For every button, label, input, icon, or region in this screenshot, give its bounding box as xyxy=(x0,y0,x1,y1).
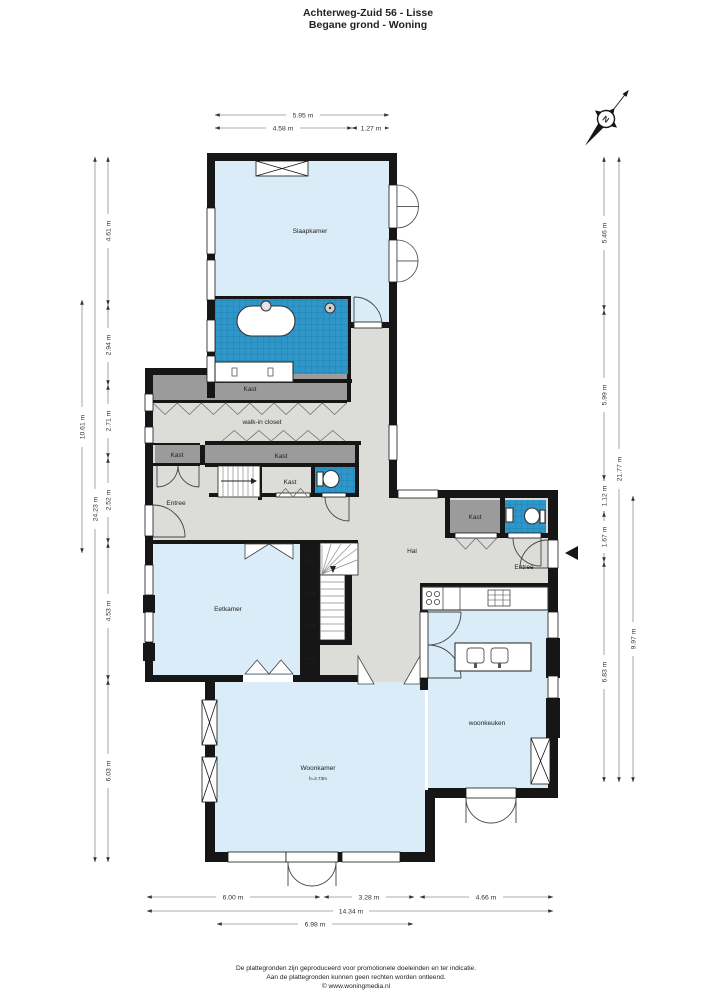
toilet-tank xyxy=(317,472,323,486)
toilet-tank xyxy=(540,510,545,523)
upper-toilet-fixtures xyxy=(317,471,339,488)
dim-bottom-total: 14.34 m xyxy=(339,909,364,916)
dim-bottom-seg3: 4.66 m xyxy=(476,895,497,902)
dim-right-seg1: 5.46 m xyxy=(602,222,609,243)
compass-icon: N xyxy=(574,81,640,154)
dim-left-seg1: 4.61 m xyxy=(106,220,113,241)
room-label-kast-band: Kast xyxy=(243,386,256,393)
dim-left-seg6: 6.03 m xyxy=(106,760,113,781)
room-label-entree-upper: Entree xyxy=(166,500,186,507)
dim-left-seg2: 2.94 m xyxy=(106,334,113,355)
dim-right-seg2: 5.99 m xyxy=(602,384,609,405)
room-label-kast-stairs: Kast xyxy=(283,479,296,486)
room-label-kast-col-3: Kast xyxy=(306,623,316,628)
room-label-walk-in-closet: walk-in closet xyxy=(241,419,281,426)
page-title: Achterweg-Zuid 56 - Lisse xyxy=(303,7,433,19)
crossed-window-woonkamer-1 xyxy=(202,700,217,745)
dim-right-outer: 9.97 m xyxy=(631,628,638,649)
kitchen-island xyxy=(455,643,531,671)
room-label-kast-col-4: Kast xyxy=(306,656,316,661)
floorplan-page: Achterweg-Zuid 56 - Lisse Begane grond -… xyxy=(0,0,707,1000)
toilet-bowl xyxy=(323,471,339,488)
room-label-kast-col-2: Kast xyxy=(306,591,316,596)
dim-top-seg2: 1.27 m xyxy=(361,126,382,133)
vanity xyxy=(215,362,293,382)
footer-line-3: © www.woningmedia.nl xyxy=(322,982,391,990)
dim-right-seg5: 6.83 m xyxy=(602,661,609,682)
room-label-woonkeuken: woonkeuken xyxy=(468,720,506,727)
kitchen-counter xyxy=(422,587,548,610)
footer-disclaimer: De plattegronden zijn geproduceerd voor … xyxy=(236,965,476,990)
dim-right-seg3: 1.12 m xyxy=(602,485,609,506)
dim-top-seg1: 4.58 m xyxy=(273,126,294,133)
crossed-window-woonkeuken xyxy=(531,738,550,784)
floorplan-canvas: Achterweg-Zuid 56 - Lisse Begane grond -… xyxy=(0,0,707,1000)
footer-line-2: Aan de plattegronden kunnen geen rechten… xyxy=(266,974,445,981)
dim-right-seg4: 1.67 m xyxy=(602,526,609,547)
dim-bottom-seg1: 6.00 m xyxy=(223,895,244,902)
dim-right-total: 21.77 m xyxy=(617,456,624,481)
entrance-arrow-icon xyxy=(565,546,578,560)
crossed-window-slaapkamer xyxy=(256,161,308,176)
stairs-upper xyxy=(218,466,260,497)
room-label-hal: Hal xyxy=(407,548,417,555)
dim-left-outer: 10.61 m xyxy=(80,414,87,439)
dim-left-seg3: 2.71 m xyxy=(106,410,113,431)
page-subtitle: Begane grond - Woning xyxy=(309,19,427,31)
room-label-kast-left: Kast xyxy=(170,452,183,459)
dim-left-seg4: 2.52 m xyxy=(106,489,113,510)
bath-faucet xyxy=(261,301,271,311)
dim-left-seg5: 4.53 m xyxy=(106,600,113,621)
room-label-eetkamer: Eetkamer xyxy=(214,606,243,613)
dim-bottom-seg2: 3.28 m xyxy=(359,895,380,902)
sink xyxy=(506,508,513,522)
dim-top-total: 5.95 m xyxy=(293,113,314,120)
crossed-window-woonkamer-2 xyxy=(202,757,217,802)
room-label-kast-col-1: Kast xyxy=(306,558,316,563)
footer-line-1: De plattegronden zijn geproduceerd voor … xyxy=(236,965,476,972)
room-label-woonkamer: Woonkamer xyxy=(301,765,337,772)
dim-left-total: 24.23 m xyxy=(93,496,100,521)
room-label-slaapkamer: Slaapkamer xyxy=(293,228,329,235)
room-label-woonkamer-height: h=2.73m xyxy=(309,776,327,781)
room-label-kast-hal: Kast xyxy=(468,514,481,521)
toilet-bowl xyxy=(525,508,540,524)
dim-bottom-sub: 6.98 m xyxy=(305,922,326,929)
room-label-kast-wide: Kast xyxy=(274,453,287,460)
room-label-entree-main: Entree xyxy=(514,564,534,571)
